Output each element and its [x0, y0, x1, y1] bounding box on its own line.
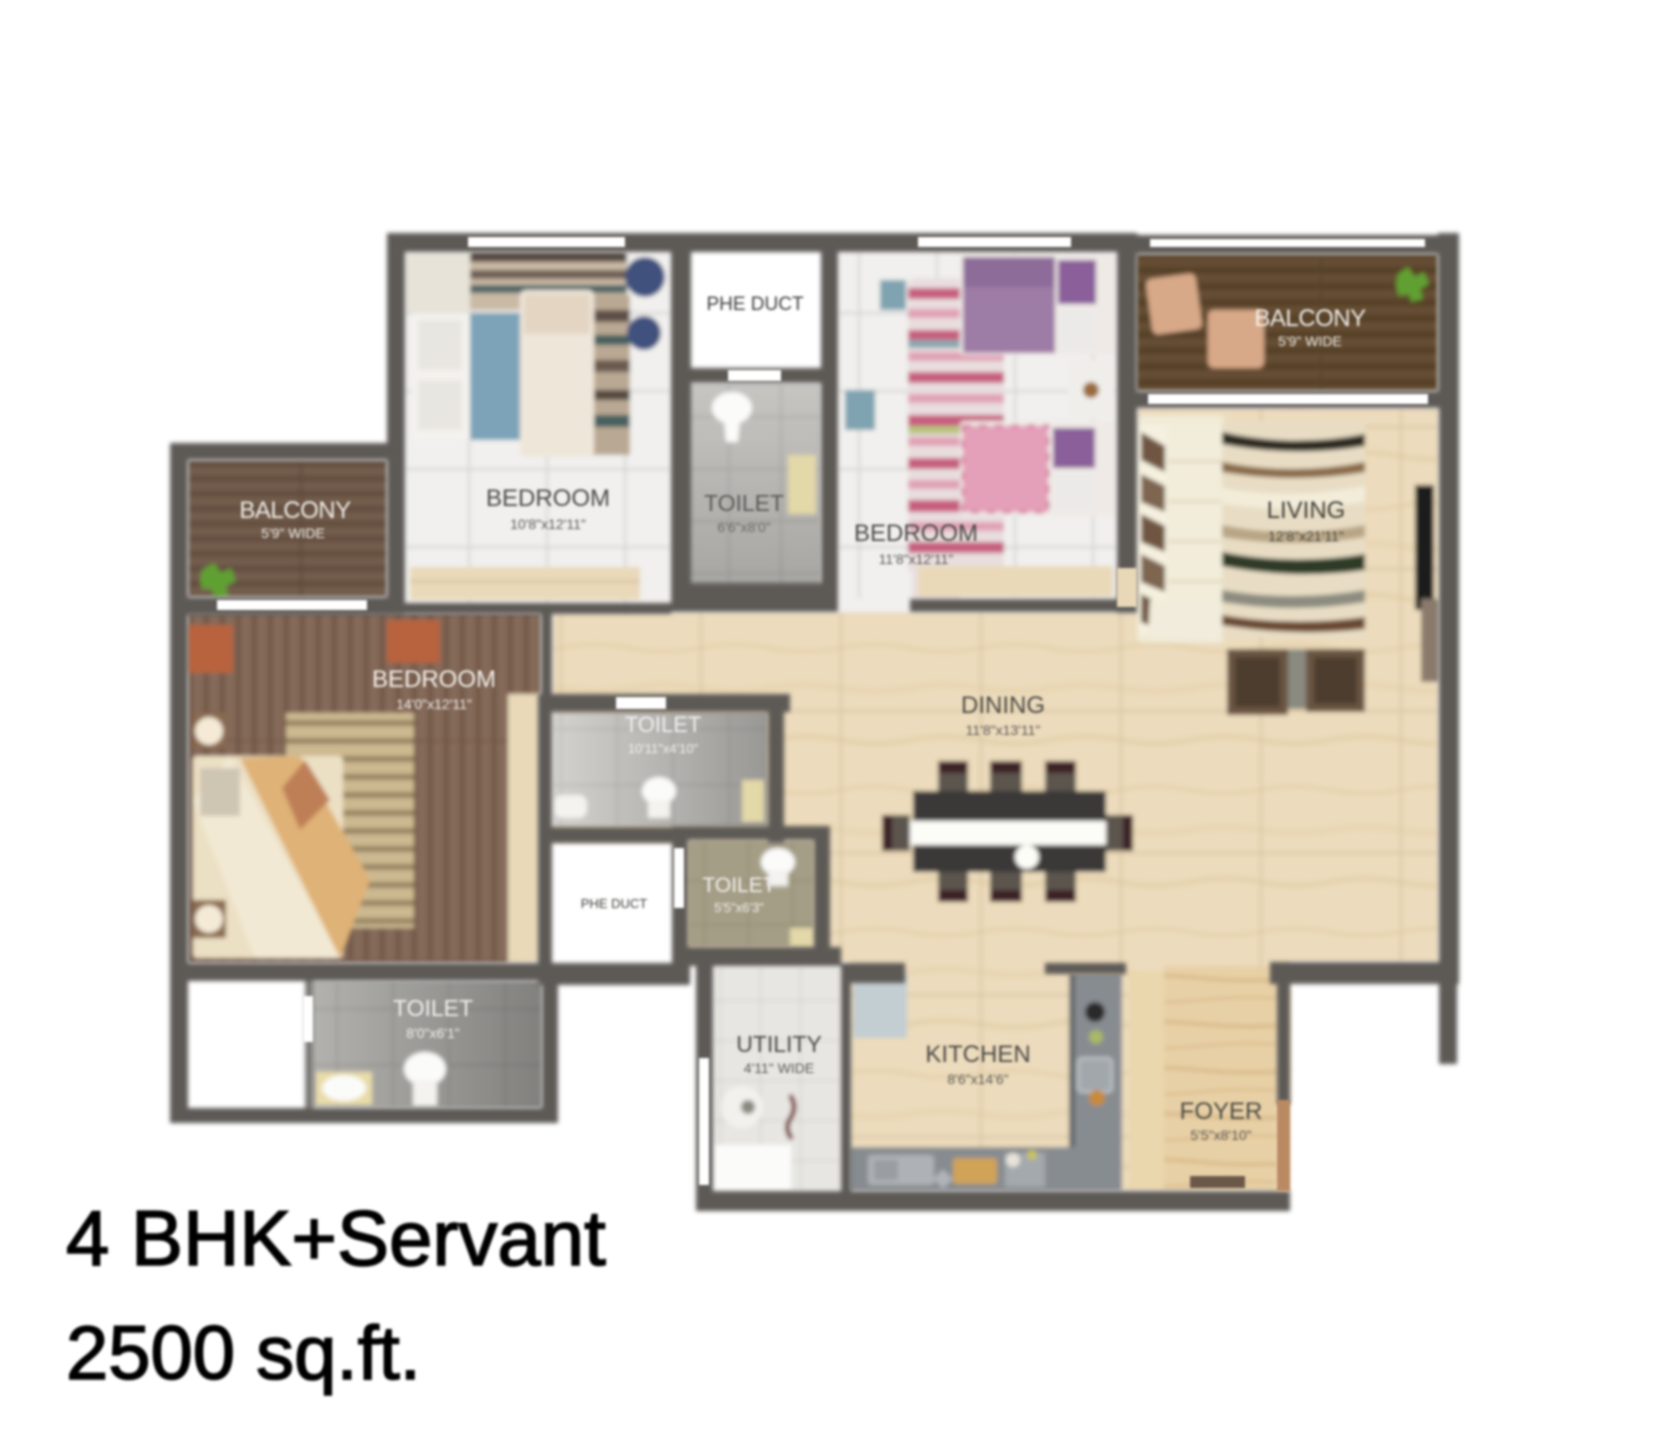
svg-text:BEDROOM: BEDROOM	[486, 485, 610, 512]
svg-text:4 BHK+Servant: 4 BHK+Servant	[66, 1194, 606, 1282]
svg-text:PHE DUCT: PHE DUCT	[581, 896, 648, 911]
svg-text:BEDROOM: BEDROOM	[372, 666, 496, 693]
svg-text:10'11"x4'10": 10'11"x4'10"	[628, 741, 699, 756]
svg-text:TOILET: TOILET	[625, 712, 702, 737]
svg-text:FOYER: FOYER	[1180, 1098, 1263, 1125]
svg-text:BEDROOM: BEDROOM	[854, 520, 978, 547]
svg-text:BALCONY: BALCONY	[1254, 305, 1366, 332]
svg-text:4'11" WIDE: 4'11" WIDE	[744, 1060, 814, 1076]
svg-text:UTILITY: UTILITY	[736, 1031, 822, 1057]
svg-text:5'9" WIDE: 5'9" WIDE	[1278, 333, 1342, 349]
svg-text:DINING: DINING	[961, 692, 1045, 719]
svg-text:8'6"x14'6": 8'6"x14'6"	[947, 1071, 1008, 1087]
svg-text:LIVING: LIVING	[1267, 497, 1346, 524]
svg-text:TOILET: TOILET	[704, 490, 784, 516]
svg-text:8'0"x6'1": 8'0"x6'1"	[406, 1025, 459, 1041]
svg-text:2500 sq.ft.: 2500 sq.ft.	[66, 1311, 421, 1396]
svg-text:TOILET: TOILET	[393, 995, 473, 1021]
svg-text:5'5"x6'3": 5'5"x6'3"	[714, 900, 764, 915]
svg-text:5'5"x8'10": 5'5"x8'10"	[1190, 1127, 1251, 1143]
svg-text:BALCONY: BALCONY	[239, 497, 351, 524]
svg-text:TOILET: TOILET	[702, 874, 775, 897]
svg-text:11'8"x13'11": 11'8"x13'11"	[966, 722, 1041, 738]
svg-text:5'9" WIDE: 5'9" WIDE	[261, 525, 325, 541]
svg-text:10'8"x12'11": 10'8"x12'11"	[510, 516, 586, 532]
svg-text:12'8"x21'11": 12'8"x21'11"	[1268, 528, 1344, 544]
svg-text:14'0"x12'11": 14'0"x12'11"	[396, 696, 472, 712]
svg-text:6'6"x8'0": 6'6"x8'0"	[717, 519, 770, 535]
svg-text:KITCHEN: KITCHEN	[925, 1041, 1030, 1068]
svg-text:PHE DUCT: PHE DUCT	[706, 294, 804, 315]
svg-text:11'8"x12'11": 11'8"x12'11"	[879, 551, 954, 567]
